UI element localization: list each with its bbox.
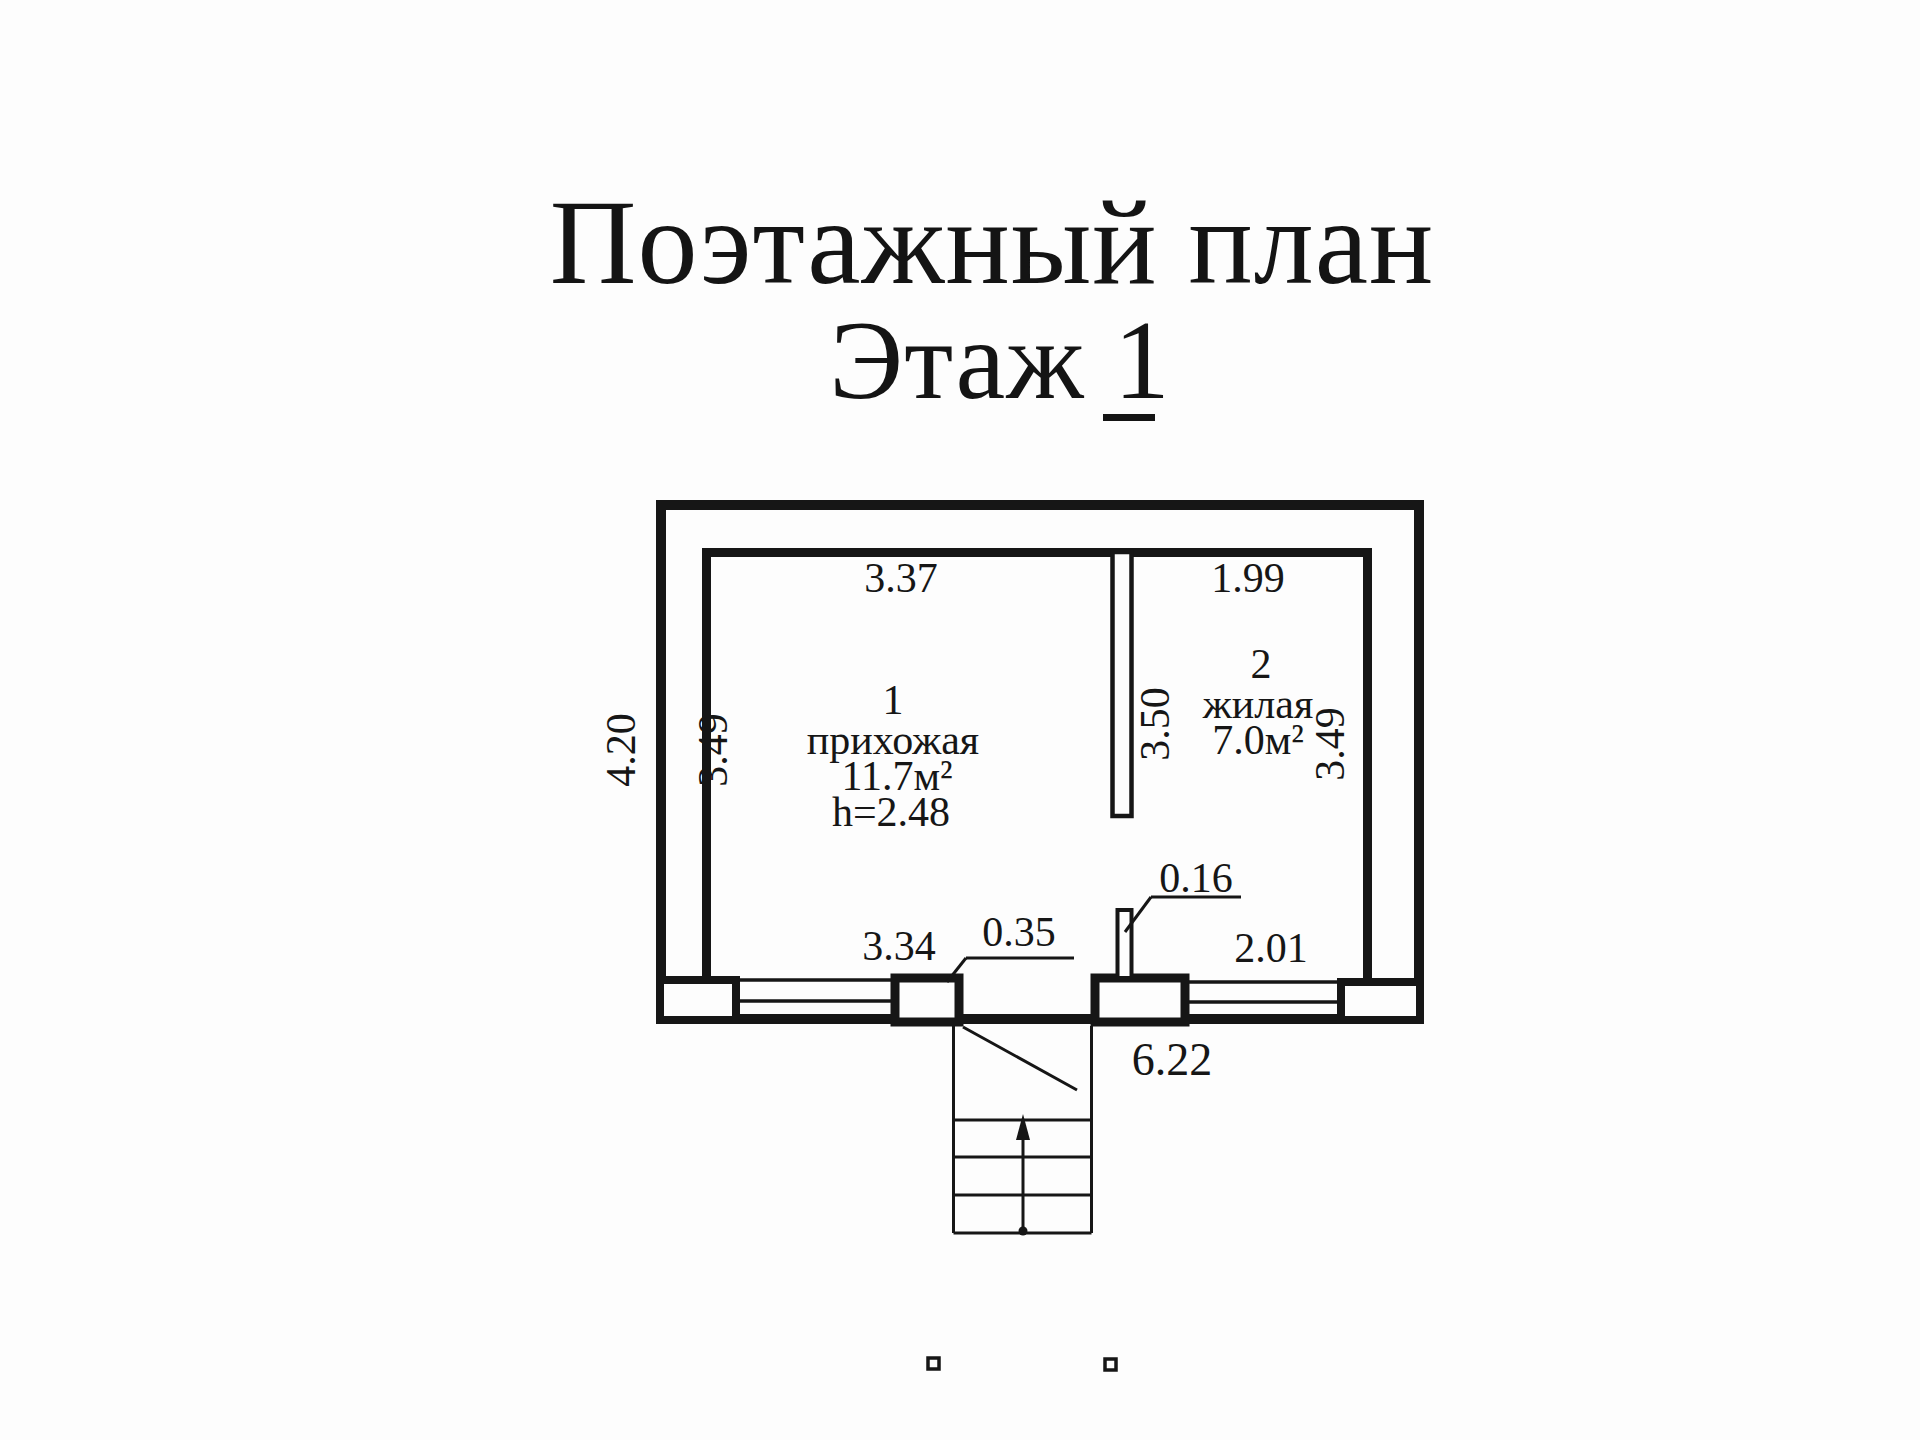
room2-number: 2 xyxy=(1251,643,1272,685)
room1-number: 1 xyxy=(883,679,904,721)
dim-partition-depth: 3.50 xyxy=(1134,687,1176,761)
leader-wall-stub xyxy=(1125,897,1241,932)
dim-entrance-pier: 0.35 xyxy=(982,911,1056,953)
wall-corner-block-left xyxy=(660,980,736,1020)
page-marker-square-right xyxy=(1105,1359,1116,1370)
pier-block-right xyxy=(1095,978,1185,1022)
stair-direction-arrow xyxy=(1016,1114,1030,1236)
door-swing-line xyxy=(963,1027,1077,1090)
dim-wall-stub: 0.16 xyxy=(1159,857,1233,899)
dim-room2-width: 1.99 xyxy=(1211,557,1285,599)
entrance-pier-block xyxy=(895,978,959,1022)
leader-entrance-pier xyxy=(947,958,1074,982)
room2-area: 7.0м² xyxy=(1212,719,1304,761)
dim-room1-depth: 3.49 xyxy=(692,713,734,787)
floor-plan-page: Поэтажный план Этаж 1 xyxy=(0,0,1920,1440)
wall-corner-block-right xyxy=(1341,982,1420,1020)
partition-wall xyxy=(1113,552,1132,816)
dim-exterior-width: 6.22 xyxy=(1132,1037,1213,1083)
dim-exterior-height: 4.20 xyxy=(600,713,642,787)
room1-ceiling-height: h=2.48 xyxy=(832,791,950,833)
dim-room2-depth: 3.49 xyxy=(1309,707,1351,781)
wall-stub xyxy=(1118,910,1132,978)
dim-room1-window: 3.34 xyxy=(862,925,936,967)
dim-room2-window: 2.01 xyxy=(1234,927,1308,969)
page-marker-square-left xyxy=(928,1358,939,1369)
dim-room1-width: 3.37 xyxy=(864,557,938,599)
